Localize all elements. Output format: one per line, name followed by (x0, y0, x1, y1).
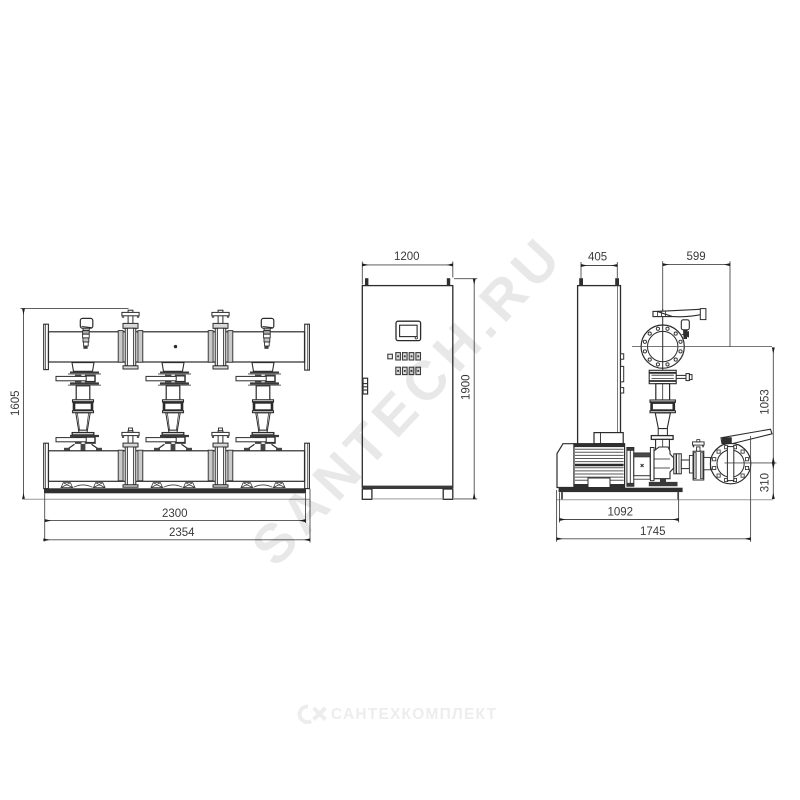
svg-text:405: 405 (588, 252, 607, 264)
svg-text:1745: 1745 (640, 526, 666, 538)
svg-text:1092: 1092 (608, 507, 634, 519)
svg-text:1605: 1605 (10, 390, 22, 416)
svg-text:2354: 2354 (169, 527, 195, 539)
svg-text:310: 310 (760, 473, 772, 492)
svg-text:1200: 1200 (394, 251, 420, 263)
svg-text:599: 599 (687, 251, 706, 263)
svg-text:2300: 2300 (162, 508, 188, 520)
svg-text:САНТЕХКОМПЛЕКТ: САНТЕХКОМПЛЕКТ (331, 706, 497, 723)
svg-text:1053: 1053 (760, 389, 772, 415)
